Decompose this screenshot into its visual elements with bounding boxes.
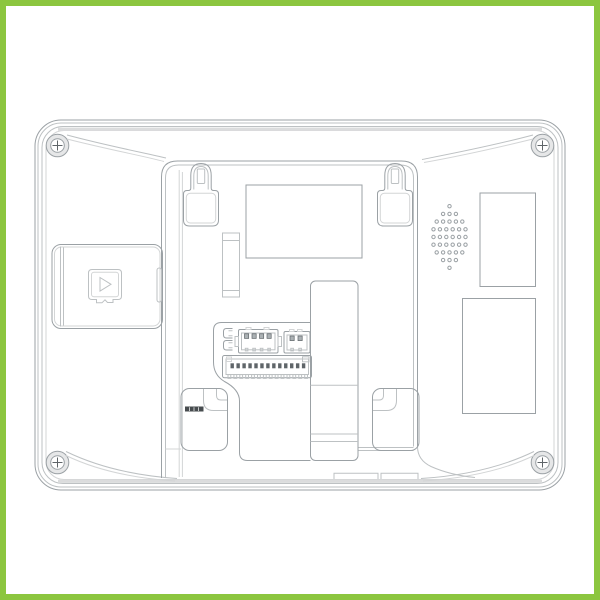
connector-pin: [302, 363, 305, 368]
screw-top-right: [531, 134, 554, 157]
connector-zone: [214, 323, 312, 461]
play-triangle-icon: [100, 278, 111, 292]
connector-pin: [267, 334, 271, 339]
grille-dot: [451, 243, 454, 246]
connector-pin: [290, 336, 294, 341]
door-finger-notch: [157, 268, 162, 302]
wall-mount-recess: [162, 161, 476, 478]
main-connector-pins: [231, 363, 306, 368]
grille-dot: [454, 220, 457, 223]
connector-pin: [252, 334, 256, 339]
sd-card-door: [52, 245, 163, 329]
connector-pin: [266, 363, 269, 368]
grille-dot: [432, 243, 435, 246]
grille-dot: [432, 235, 435, 238]
pcb-window-top: [246, 185, 362, 258]
grille-dot: [461, 251, 464, 254]
grille-dot: [445, 228, 448, 231]
two-pin-pins: [290, 336, 302, 351]
grille-dot: [448, 220, 451, 223]
hook-slot-bottom-left: [181, 389, 228, 451]
grille-dot: [441, 251, 444, 254]
grille-dot: [438, 235, 441, 238]
grille-dot: [445, 243, 448, 246]
speaker-grille: [432, 205, 467, 270]
keyhole-hook-top-right: [378, 164, 413, 227]
grille-dot: [441, 220, 444, 223]
bracket-pins: [224, 329, 233, 351]
grille-dot: [451, 235, 454, 238]
connector-pin: [231, 363, 234, 368]
slot-left: [223, 233, 240, 297]
four-pin-connector: [235, 328, 282, 354]
hook-slot-bottom-right: [373, 389, 420, 451]
product-image: [0, 0, 600, 600]
bottom-stand-tabs: [334, 473, 418, 479]
pcb-window-right-bottom: [463, 299, 536, 414]
top-edge-band: [58, 128, 542, 131]
screw-top-left: [46, 134, 69, 157]
grille-dot: [445, 235, 448, 238]
connector-pin: [260, 363, 263, 368]
grille-dot: [457, 243, 460, 246]
grille-dot: [448, 205, 451, 208]
connector-pin: [254, 363, 257, 368]
connector-pin: [272, 363, 275, 368]
grille-dot: [435, 251, 438, 254]
connector-pin: [242, 363, 245, 368]
technical-drawing: [0, 0, 600, 600]
main-connector: [223, 356, 312, 379]
connector-pin: [260, 334, 264, 339]
grille-dot: [464, 228, 467, 231]
grille-dot: [441, 212, 444, 215]
shell-curvature-lines: [66, 135, 534, 481]
grille-dot: [454, 251, 457, 254]
connector-pin: [236, 363, 239, 368]
pcb-window-right-top: [480, 193, 536, 287]
grille-dot: [448, 251, 451, 254]
grille-dot: [441, 258, 444, 261]
grille-dot: [454, 258, 457, 261]
grille-dot: [448, 212, 451, 215]
grille-dot: [438, 243, 441, 246]
connector-pin: [290, 363, 293, 368]
grille-dot: [464, 235, 467, 238]
grille-dot: [454, 212, 457, 215]
grille-dot: [464, 243, 467, 246]
screw-bottom-left: [46, 451, 69, 474]
grille-dot: [438, 228, 441, 231]
connector-pin: [245, 334, 249, 339]
grille-dot: [451, 228, 454, 231]
wire-channel-column: [311, 281, 359, 461]
grille-dot: [432, 228, 435, 231]
grille-dot: [461, 220, 464, 223]
connector-pin: [248, 363, 251, 368]
connector-pin: [298, 336, 302, 341]
microsd-card-icon: [89, 270, 122, 303]
screw-bottom-right: [531, 451, 554, 474]
connector-pin: [284, 363, 287, 368]
four-pin-pins: [245, 334, 272, 351]
two-pin-connector: [284, 330, 310, 354]
keyhole-hook-top-left: [184, 164, 219, 227]
connector-pin: [278, 363, 281, 368]
grille-dot: [448, 266, 451, 269]
grille-dot: [457, 235, 460, 238]
outer-shell: [35, 120, 565, 490]
grille-dot: [448, 258, 451, 261]
grille-dot: [457, 228, 460, 231]
bottom-edge-band: [58, 480, 542, 483]
grille-dot: [435, 220, 438, 223]
connector-pin: [296, 363, 299, 368]
device-rear-drawing: [35, 120, 565, 490]
